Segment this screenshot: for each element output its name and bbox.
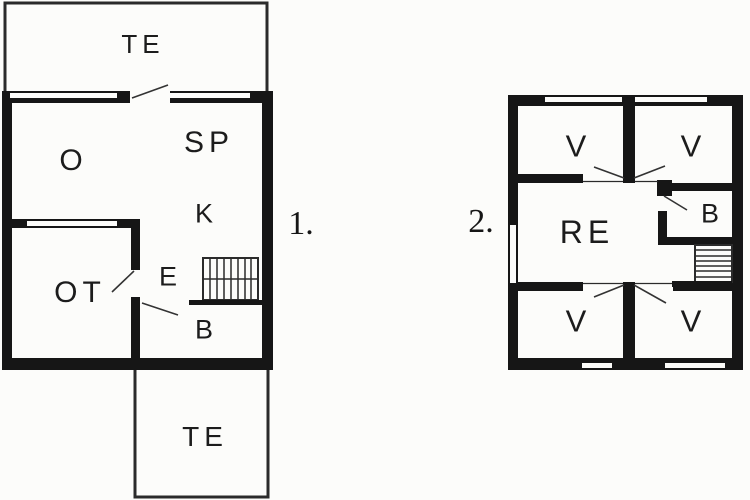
- floor2-number-label: 2.: [468, 205, 494, 239]
- stairs-floor1-base: [189, 300, 265, 305]
- wall-v-divider-top: [623, 106, 635, 183]
- room-label-sp: SP: [184, 128, 234, 158]
- door-swing-v-bottom-left: [594, 285, 624, 297]
- wall-ot-e-lower: [131, 297, 140, 358]
- stairs-floor2: [695, 245, 732, 282]
- room-label-v-bottom-right: V: [681, 306, 702, 337]
- room-label-o: O: [59, 146, 82, 176]
- wall-re-top-left: [518, 174, 583, 183]
- window-floor2-top-right: [635, 97, 707, 102]
- room-label-ot: OT: [54, 278, 106, 308]
- floor1-plan: [2, 3, 273, 497]
- floorplan-canvas: TE O SP K E OT B TE 1. V V RE B V V 2.: [0, 0, 750, 500]
- wall-ot-e-upper: [131, 219, 140, 270]
- door-swing-v-top-right: [634, 166, 665, 178]
- window-floor1-top-right: [170, 93, 250, 98]
- wall-v-divider-bottom: [623, 282, 635, 358]
- wall-re-bottom-left: [518, 282, 583, 291]
- floor1-wall-bottom: [2, 358, 273, 370]
- room-label-v-top-right: V: [681, 131, 702, 162]
- room-label-e: E: [159, 264, 177, 291]
- room-label-re: RE: [560, 216, 614, 248]
- room-label-terrace-bottom: TE: [182, 423, 228, 451]
- floor2-wall-top: [508, 95, 743, 106]
- wall-bath2-top: [657, 183, 732, 191]
- room-label-b-floor1: B: [195, 317, 213, 344]
- door-swing-v-top-left: [594, 167, 624, 178]
- stairs-floor1: [203, 258, 258, 300]
- floor1-wall-right: [262, 91, 273, 370]
- room-label-v-top-left: V: [566, 131, 587, 162]
- wall-bath2-bottom: [658, 237, 732, 245]
- floor1-wall-left: [2, 91, 12, 370]
- floorplan-drawing: [0, 0, 750, 500]
- room-label-b-floor2: B: [701, 201, 719, 228]
- door-swing-bath1: [142, 303, 178, 315]
- door-swing-bath2: [664, 196, 687, 210]
- window-floor2-left: [510, 225, 516, 283]
- door-swing-v-bottom-right: [634, 285, 666, 303]
- floor2-wall-right: [732, 95, 743, 370]
- floor1-number-label: 1.: [288, 207, 314, 241]
- window-floor2-bottom-right: [665, 363, 725, 368]
- floor2-plan: [508, 95, 743, 370]
- window-floor2-top-left: [545, 97, 622, 102]
- window-floor2-bottom-left: [582, 363, 612, 368]
- window-floor1-top-left: [10, 93, 117, 98]
- room-label-terrace-top: TE: [121, 31, 164, 57]
- room-label-k: K: [195, 201, 213, 228]
- stairs-floor2-base: [672, 281, 732, 287]
- room-label-v-bottom-left: V: [566, 306, 587, 337]
- window-o-ot: [27, 221, 117, 226]
- door-swing-ot: [112, 271, 134, 292]
